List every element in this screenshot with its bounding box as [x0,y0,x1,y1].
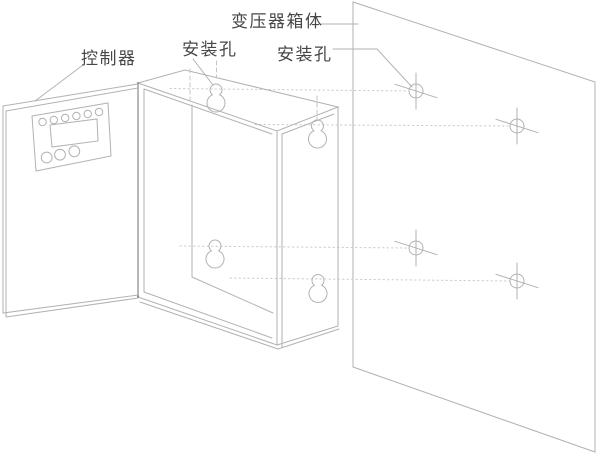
panel-button [73,112,80,119]
panel-button [50,116,57,123]
panel-button [41,152,52,163]
wall-mounting-hole-4 [496,263,538,299]
panel-outline [353,2,595,452]
label-transformer-box-body: 变压器箱体 [231,13,324,30]
guide-line-3 [180,246,408,248]
door-bottom-thickness [6,298,138,317]
controller-panel [32,103,111,171]
cabinet-keyhole-top-right [309,120,327,148]
controller-panel-outline [32,103,111,171]
transformer-box-panel [353,2,595,452]
figure-canvas: 控制器 安装孔 变压器箱体 安装孔 [0,0,600,458]
label-controller: 控制器 [81,50,137,67]
panel-button [61,114,68,121]
cabinet-door [3,84,138,317]
controller-display [50,119,98,147]
leader-mounting-hole-wall [333,49,412,87]
cabinet-box [138,61,339,349]
label-mounting-hole-wall: 安装孔 [277,46,333,63]
cabinet-keyhole-bottom-left [206,240,224,268]
bottom-right-edge-2 [278,329,339,349]
bottom-right-edge [277,326,338,345]
panel-button [69,146,80,157]
guide-line-4 [230,278,509,281]
interior-back-bottom-edge [192,277,273,313]
door-outline [3,84,138,313]
leader-controller [35,65,83,101]
panel-large-buttons [41,146,79,163]
panel-button [95,108,102,115]
panel-button [55,149,66,160]
door-top-thickness [6,88,138,111]
top-right-inner-lip [282,114,334,134]
panel-button [39,118,46,125]
technical-diagram [0,0,600,458]
guide-line-1 [170,89,408,92]
interior-bottom-front-lip [144,292,272,338]
panel-small-buttons [39,108,103,125]
panel-button [84,110,91,117]
leader-mounting-hole-cabinet [193,59,213,85]
opening-inner-top [144,89,272,134]
label-mounting-hole-cabinet: 安装孔 [182,41,238,58]
bottom-front-edge-2 [140,302,278,349]
bottom-front-edge [138,297,277,345]
